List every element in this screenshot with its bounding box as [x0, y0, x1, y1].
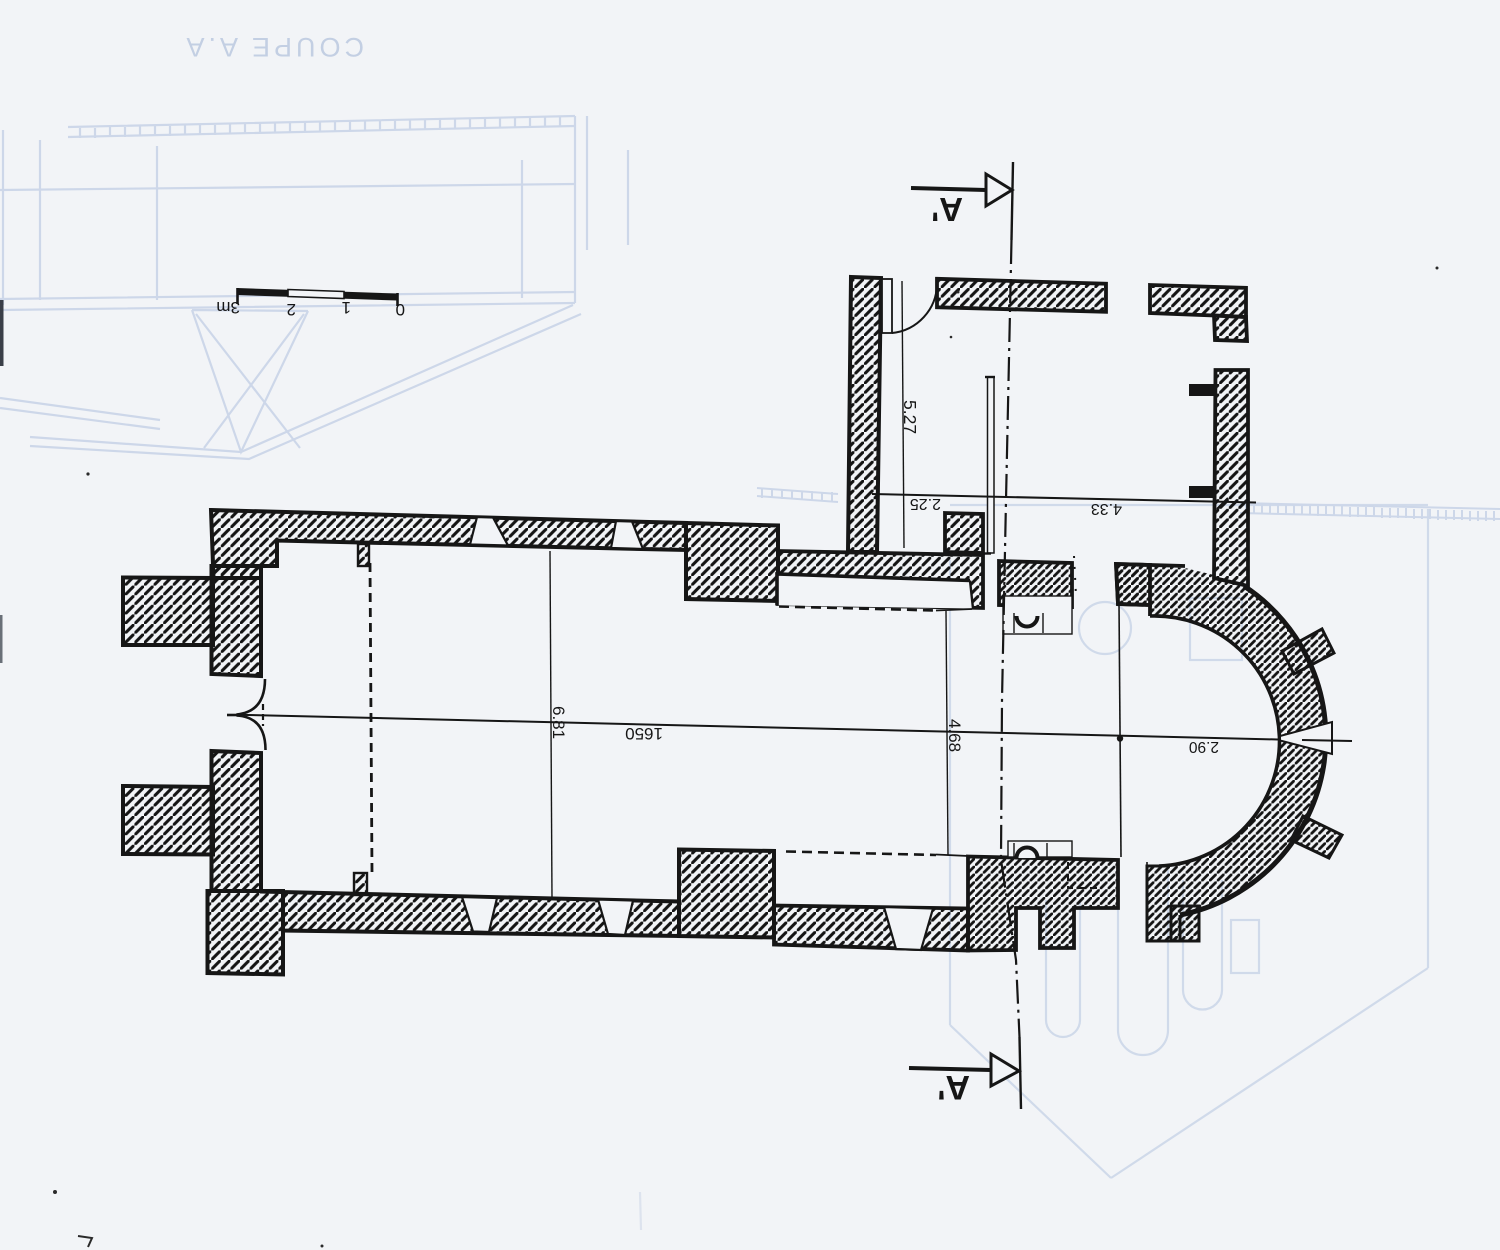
- svg-text:6.81: 6.81: [549, 706, 568, 739]
- svg-text:2.25: 2.25: [910, 495, 941, 512]
- svg-text:2.90: 2.90: [1188, 738, 1219, 755]
- svg-text:1: 1: [342, 298, 351, 317]
- svg-text:COUPE A.A: COUPE A.A: [182, 32, 364, 62]
- svg-text:A': A': [931, 191, 963, 228]
- svg-text:5.27: 5.27: [900, 400, 920, 434]
- svg-text:4.33: 4.33: [1091, 500, 1122, 517]
- svg-text:3m: 3m: [216, 298, 240, 317]
- svg-text:2: 2: [287, 300, 296, 319]
- svg-text:4.68: 4.68: [945, 719, 964, 752]
- svg-text:A': A': [937, 1068, 970, 1106]
- svg-text:1650: 1650: [625, 724, 663, 743]
- svg-text:0: 0: [396, 300, 405, 319]
